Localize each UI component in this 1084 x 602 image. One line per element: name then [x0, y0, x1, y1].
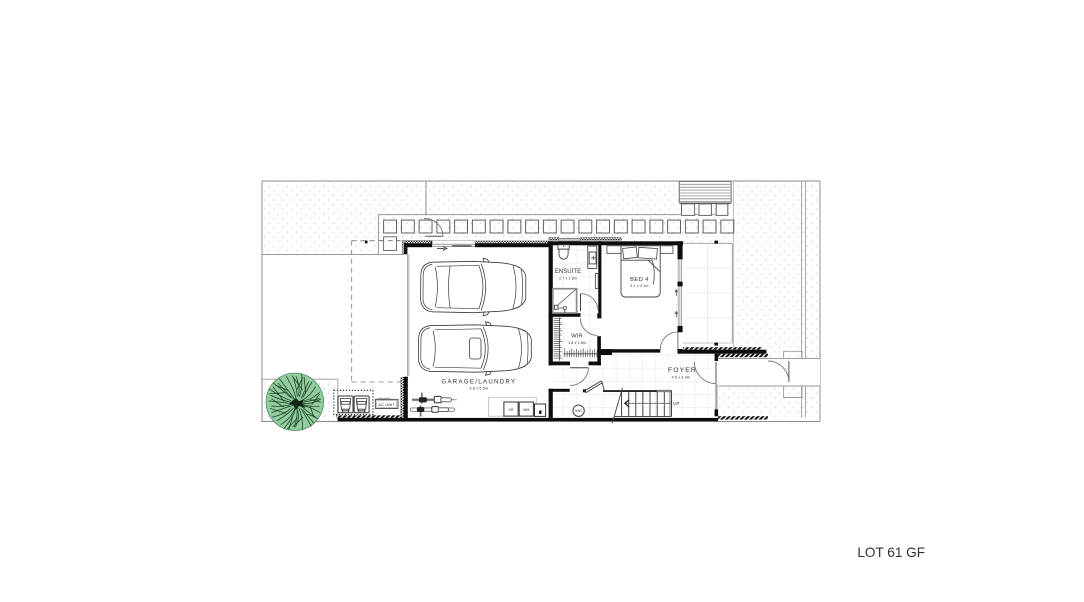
svg-text:FOYER: FOYER	[668, 367, 697, 374]
svg-text:LOT 61 GF: LOT 61 GF	[857, 545, 925, 560]
svg-text:HWC: HWC	[575, 409, 583, 413]
svg-text:WM: WM	[523, 408, 529, 412]
svg-text:AC UNIT: AC UNIT	[378, 402, 395, 407]
svg-text:BED 4: BED 4	[630, 277, 649, 283]
svg-text:6.8 x 5.5m: 6.8 x 5.5m	[470, 387, 489, 391]
svg-text:4.5 x 1.4m: 4.5 x 1.4m	[672, 376, 691, 380]
svg-text:ENSUITE: ENSUITE	[555, 269, 581, 275]
svg-text:WIR: WIR	[571, 333, 583, 339]
svg-text:UP: UP	[673, 401, 680, 406]
svg-text:GARAGE/LAUNDRY: GARAGE/LAUNDRY	[441, 379, 516, 386]
svg-text:2.7 x 1.8m: 2.7 x 1.8m	[559, 277, 577, 281]
svg-text:4.1 x 3.1m: 4.1 x 3.1m	[630, 284, 648, 288]
svg-text:DR: DR	[509, 408, 514, 412]
svg-text:1.8 x 1.8m: 1.8 x 1.8m	[568, 341, 586, 345]
